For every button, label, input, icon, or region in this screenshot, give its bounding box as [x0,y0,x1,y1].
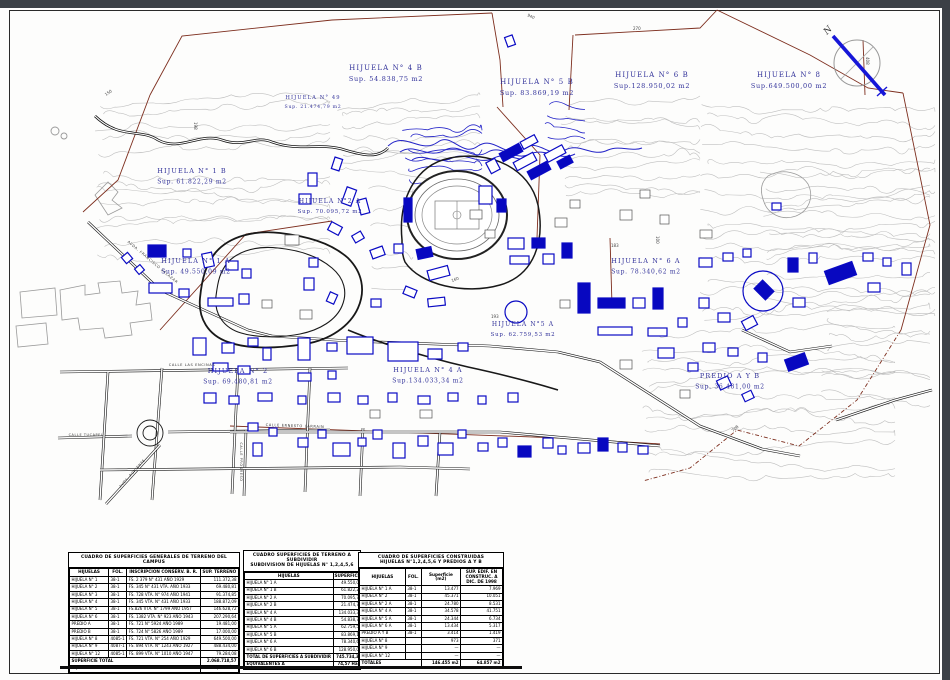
table-cell: 4085-1 [108,636,126,643]
table-row: HIJUELA N° 238-1FS. 345 N° 431 VTA. AÑO … [70,584,239,591]
table-cell: HIJUELA N° 6 A [245,639,334,646]
table-cell: FS. 2 379 N° 431 AÑO 1929 [127,577,200,584]
col-header: HIJUELAS [245,572,334,580]
table-cell: HIJUELA N° 5 [70,606,109,613]
table-cell [405,652,421,659]
table-cell: 34.578 [421,608,460,615]
table-cell: 17.000,00 [200,628,239,635]
table-cell: FS. 724 N° 5826 AÑO 1989 [127,628,200,635]
table-cell: 38-1 [405,608,421,615]
table-cell: FS. 721 N° 5924 AÑO 1989 [127,621,200,628]
table-row: HIJUELA N° 6 B128.950,02 [245,646,364,653]
table-cell: FS. 345 N° 431 VTA. AÑO 1933 [127,584,200,591]
table-row: HIJUELA N° 2 B21.474,79 [245,602,364,609]
table-row: HIJUELA N° 94087-1FS. 894 VTA. N° 1243 A… [70,643,239,650]
col-header: SUP. EDIF. EN CONSTRUC. A DIC. DE 1998 [461,569,503,586]
table-row: HIJUELA N° 12—— [360,652,503,659]
table-cell: 973 [421,637,460,644]
col-header: INSCRIPCION CONSERV. B. R. [127,569,200,577]
table-row: HIJUELA N° 9—— [360,645,503,652]
table-cell: HIJUELA N° 5 A [360,615,406,622]
table-row: HIJUELA N° 124085-1FS. 899 VTA. N° 1010 … [70,650,239,657]
table-row: HIJUELA N° 1 A49.550,09 [245,580,364,587]
table-cell: 38-1 [405,586,421,593]
table-cell: 10.051 [461,593,503,600]
surface-tables: CUADRO DE SUPERFICIES GENERALES DE TERRE… [0,0,950,680]
table-cell: HIJUELA N° 6 B [245,646,334,653]
table-cell: — [421,652,460,659]
table-cell: 38-1 [108,621,126,628]
table-row: HIJUELA N° 4 A38-134.57841.751 [360,608,503,615]
table-cell: HIJUELA N° 2 [360,593,406,600]
table-cell: FS. 1382 VTA. N° 923 AÑO 1943 [127,613,200,620]
table-cell: FS. 728 VTA. N° 974 AÑO 1941 [127,591,200,598]
table-cell: 38-1 [405,593,421,600]
table-t2: CUADRO SUPERFICIES DE TERRENO A SUBDIVID… [243,550,361,670]
table-cell: HIJUELA N° 9 [70,643,109,650]
table-cell [405,637,421,644]
table-cell: 7.969 [461,586,503,593]
table-cell: 45.371 [421,593,460,600]
table-cell: HIJUELA N° 1 A [360,586,406,593]
table-row: HIJUELA N° 138-1FS. 2 379 N° 431 AÑO 192… [70,577,239,584]
table-cell: 19.481,00 [200,621,239,628]
table-cell: HIJUELA N° 5 B [245,631,334,638]
table-t1: CUADRO DE SUPERFICIES GENERALES DE TERRE… [68,552,240,674]
table-cell: 38-1 [108,606,126,613]
table-cell: HIJUELA N° 6 A [360,623,406,630]
table-cell: FS.826 VTA. N° 1799 AÑO 1957 [127,606,200,613]
table-cell: 38-1 [108,577,126,584]
table-cell: 1.419 [461,630,503,637]
table-cell: 24.780 [421,600,460,607]
table-cell: HIJUELA N° 8 [70,636,109,643]
table-cell: HIJUELA N° 12 [360,652,406,659]
table-row: HIJUELA N° 438-1FS. 345 VTA. N° 431 AÑO … [70,599,239,606]
col-header: SUP. TERRENO [200,569,239,577]
table-cell: PREDIO A Y B [360,630,406,637]
table-row: HIJUELA N° 538-1FS.826 VTA. N° 1799 AÑO … [70,606,239,613]
table-cell: 4087-1 [108,643,126,650]
table-row: HIJUELA N° 5 B83.869,19 [245,631,364,638]
table-cell: — [421,645,460,652]
table-cell: 24.344 [421,615,460,622]
table-cell: 8.531 [461,600,503,607]
cad-drawing-window: N150198940270408183193708100160AVDA. FRA… [0,0,950,680]
table-cell: 38-1 [405,623,421,630]
table-t3-title: CUADRO DE SUPERFICIES CONSTRUIDASHIJUELA… [359,553,503,568]
table-cell: 5.317 [461,623,503,630]
table-cell: PREDIO A [70,621,109,628]
table-cell: 79.284,08 [200,650,239,657]
table-cell: — [461,652,503,659]
table-cell: FS. 894 VTA. N° 1243 AÑO 1927 [127,643,200,650]
table-cell: 13.434 [421,623,460,630]
table-row: HIJUELA N° 5 A62.759,53 [245,624,364,631]
table-cell: 3.414 [421,630,460,637]
table-cell: HIJUELA N° 2 B [245,602,334,609]
table-row: HIJUELA N° 1 A38-113.4777.969 [360,586,503,593]
table-row: HIJUELA N° 4 A134.033,34 [245,609,364,616]
table-cell: — [461,645,503,652]
table-cell: HIJUELA N° 4 A [245,609,334,616]
table-cell: HIJUELA N° 1 A [245,580,334,587]
table-cell: 649.500,00 [200,636,239,643]
table-cell: HIJUELA N° 2 A [360,600,406,607]
table-cell: 371 [461,637,503,644]
table-footer-cell: TOTAL DE SUPERFICIES A SUBDIVIDIR [245,654,334,661]
table-cell: 38-1 [108,591,126,598]
table-cell: 38-1 [405,615,421,622]
col-header: HIJUELAS [360,569,406,586]
table-cell: 6.734 [461,615,503,622]
table-row: HIJUELA N° 2 A70.095,72 [245,594,364,601]
table-cell [405,645,421,652]
table-t1-title: CUADRO DE SUPERFICIES GENERALES DE TERRE… [69,553,239,568]
table-cell: HIJUELA N° 2 A [245,594,334,601]
table-cell: 38-1 [108,584,126,591]
table-row: HIJUELA N° 5 A38-124.3446.734 [360,615,503,622]
table-cell: 38-1 [108,628,126,635]
table-cell: 38-1 [405,600,421,607]
table-row: HIJUELA N° 4 B54.838,75 [245,617,364,624]
sheet-bottom-rule [60,666,522,669]
table-row: HIJUELA N° 638-1FS. 1382 VTA. N° 923 AÑO… [70,613,239,620]
table-footer-cell: SUPERFICIE TOTAL [70,658,201,665]
col-header: HIJUELAS [70,569,109,577]
table-cell: 488.434,00 [200,643,239,650]
table-row: HIJUELA N° 338-1FS. 728 VTA. N° 974 AÑO … [70,591,239,598]
table-row: HIJUELA N° 6 A78.340,62 [245,639,364,646]
table-cell: HIJUELA N° 4 A [360,608,406,615]
table-cell: FS. 345 VTA. N° 431 AÑO 1933 [127,599,200,606]
table-footer-row: TOTAL DE SUPERFICIES A SUBDIVIDIR745.734… [245,654,364,661]
col-header: Superficie (m2) [421,569,460,586]
table-row: PREDIO B38-1FS. 724 N° 5826 AÑO 198917.0… [70,628,239,635]
table-row: HIJUELA N° 6 A38-113.4345.317 [360,623,503,630]
table-cell: 188.872,09 [200,599,239,606]
table-row: HIJUELA N° 1 B61.822,29 [245,587,364,594]
table-cell: 4085-1 [108,650,126,657]
table-cell: 38-1 [108,599,126,606]
table-row: PREDIO A Y B38-13.4141.419 [360,630,503,637]
table-cell: HIJUELA N° 1 [70,577,109,584]
table-cell: HIJUELA N° 2 [70,584,109,591]
table-cell: 41.751 [461,608,503,615]
table-cell: PREDIO B [70,628,109,635]
col-header: FOL. [108,569,126,577]
table-cell: HIJUELA N° 3 [70,591,109,598]
table-cell: 91.374,85 [200,591,239,598]
col-header: FOL. [405,569,421,586]
table-cell: HIJUELA N° 4 [70,599,109,606]
table-cell: 207.290,64 [200,613,239,620]
table-cell: HIJUELA N° 8 [360,637,406,644]
table-row: HIJUELA N° 84085-1FS. 721 VTA. N° 254 AÑ… [70,636,239,643]
table-cell: 13.477 [421,586,460,593]
table-cell: HIJUELA N° 9 [360,645,406,652]
table-cell: 111.372,38 [200,577,239,584]
table-cell: HIJUELA N° 5 A [245,624,334,631]
table-cell: HIJUELA N° 1 B [245,587,334,594]
table-cell: HIJUELA N° 6 [70,613,109,620]
table-row: HIJUELA N° 2 A38-124.7808.531 [360,600,503,607]
table-footer-row: SUPERFICIE TOTAL2.068.718,57 [70,658,239,665]
table-cell: HIJUELA N° 4 B [245,617,334,624]
table-t3: CUADRO DE SUPERFICIES CONSTRUIDASHIJUELA… [358,552,504,668]
table-cell: 38-1 [405,630,421,637]
table-t2-title: CUADRO SUPERFICIES DE TERRENO A SUBDIVID… [244,551,360,572]
table-cell: 146.628,72 [200,606,239,613]
table-cell: HIJUELA N° 12 [70,650,109,657]
table-row: HIJUELA N° 238-145.37110.051 [360,593,503,600]
table-footer-cell: 2.068.718,57 [200,658,239,665]
table-cell: 69.480,81 [200,584,239,591]
table-cell: FS. 899 VTA. N° 1010 AÑO 1947 [127,650,200,657]
table-cell: FS. 721 VTA. N° 254 AÑO 1929 [127,636,200,643]
table-cell: 38-1 [108,613,126,620]
table-row: HIJUELA N° 8973371 [360,637,503,644]
table-row: PREDIO A38-1FS. 721 N° 5924 AÑO 198919.4… [70,621,239,628]
